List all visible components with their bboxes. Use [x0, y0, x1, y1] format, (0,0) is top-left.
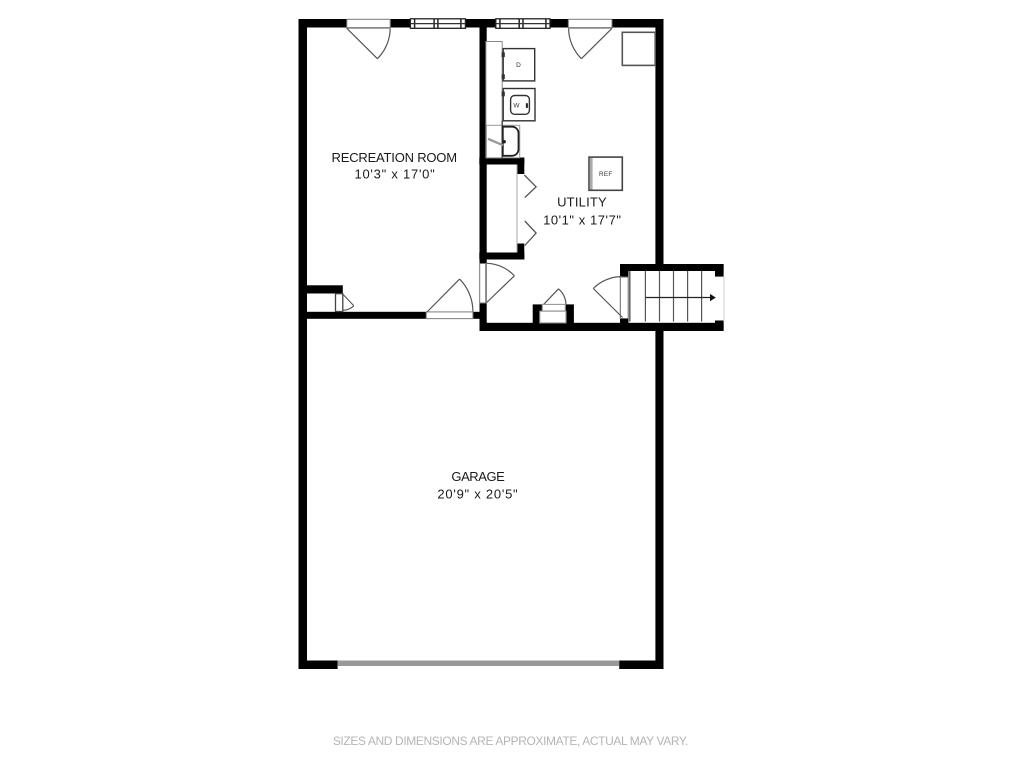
svg-text:10'3" x 17'0": 10'3" x 17'0" [354, 167, 435, 182]
svg-text:D: D [516, 62, 521, 69]
svg-text:W: W [513, 102, 520, 109]
svg-text:RECREATION ROOM: RECREATION ROOM [332, 150, 457, 165]
svg-text:UTILITY: UTILITY [557, 195, 607, 210]
svg-text:GARAGE: GARAGE [451, 469, 505, 484]
svg-text:20'9" x 20'5": 20'9" x 20'5" [437, 486, 518, 501]
svg-text:10'1" x 17'7": 10'1" x 17'7" [543, 212, 621, 227]
svg-text:SIZES AND DIMENSIONS ARE APPRO: SIZES AND DIMENSIONS ARE APPROXIMATE, AC… [333, 734, 688, 748]
svg-text:REF: REF [599, 171, 613, 178]
